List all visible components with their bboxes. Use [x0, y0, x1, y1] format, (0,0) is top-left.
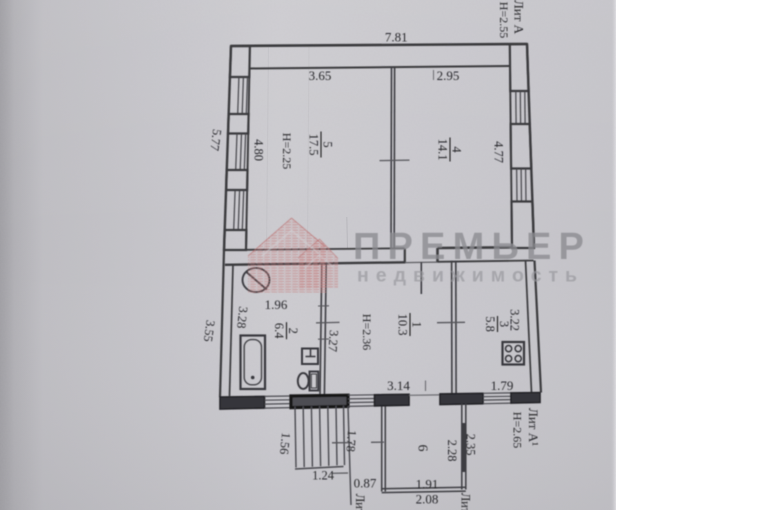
svg-text:5.8: 5.8 [483, 316, 497, 332]
svg-text:0.87: 0.87 [354, 476, 377, 491]
svg-text:10.3: 10.3 [396, 314, 410, 336]
svg-text:ПРЕМЬЕР: ПРЕМЬЕР [353, 226, 591, 268]
svg-text:4: 4 [450, 146, 464, 153]
svg-text:1: 1 [410, 321, 424, 327]
svg-text:2.08: 2.08 [416, 492, 439, 507]
svg-text:2.95: 2.95 [437, 68, 460, 83]
svg-text:2.28: 2.28 [445, 440, 459, 462]
svg-text:Лит: Лит [353, 494, 367, 510]
svg-text:3.65: 3.65 [309, 68, 332, 83]
svg-text:1.96: 1.96 [265, 297, 288, 312]
svg-text:3.27: 3.27 [325, 330, 340, 353]
svg-text:1.24: 1.24 [312, 469, 335, 483]
svg-text:17.5: 17.5 [307, 134, 321, 156]
svg-text:Лит: Лит [459, 493, 473, 510]
svg-text:7.81: 7.81 [385, 30, 408, 45]
svg-text:3.55: 3.55 [201, 319, 218, 343]
svg-text:3.28: 3.28 [234, 306, 250, 329]
svg-text:6: 6 [415, 445, 430, 452]
svg-text:3: 3 [497, 321, 511, 327]
svg-text:2: 2 [286, 328, 300, 334]
svg-text:5: 5 [321, 141, 335, 147]
svg-text:Н=2.36: Н=2.36 [360, 314, 374, 350]
svg-text:Н=2.65: Н=2.65 [511, 412, 525, 448]
svg-text:4.77: 4.77 [492, 141, 506, 163]
svg-text:2.35: 2.35 [464, 434, 478, 456]
svg-text:Н=2.25: Н=2.25 [280, 133, 294, 169]
svg-text:3.14: 3.14 [387, 378, 410, 393]
svg-text:Лит А: Лит А [512, 0, 527, 35]
svg-text:Н=2.55: Н=2.55 [497, 2, 511, 38]
svg-text:1.78: 1.78 [343, 430, 358, 453]
svg-text:14.1: 14.1 [436, 139, 450, 161]
svg-text:5.77: 5.77 [207, 128, 224, 152]
svg-text:1.56: 1.56 [277, 432, 293, 455]
svg-text:1.79: 1.79 [491, 378, 514, 393]
svg-text:6.4: 6.4 [272, 323, 286, 339]
svg-text:4.80: 4.80 [252, 139, 266, 161]
svg-text:1.91: 1.91 [416, 477, 439, 492]
svg-text:недвижимость: недвижимость [357, 265, 584, 287]
svg-text:Лит А¹: Лит А¹ [526, 408, 541, 446]
